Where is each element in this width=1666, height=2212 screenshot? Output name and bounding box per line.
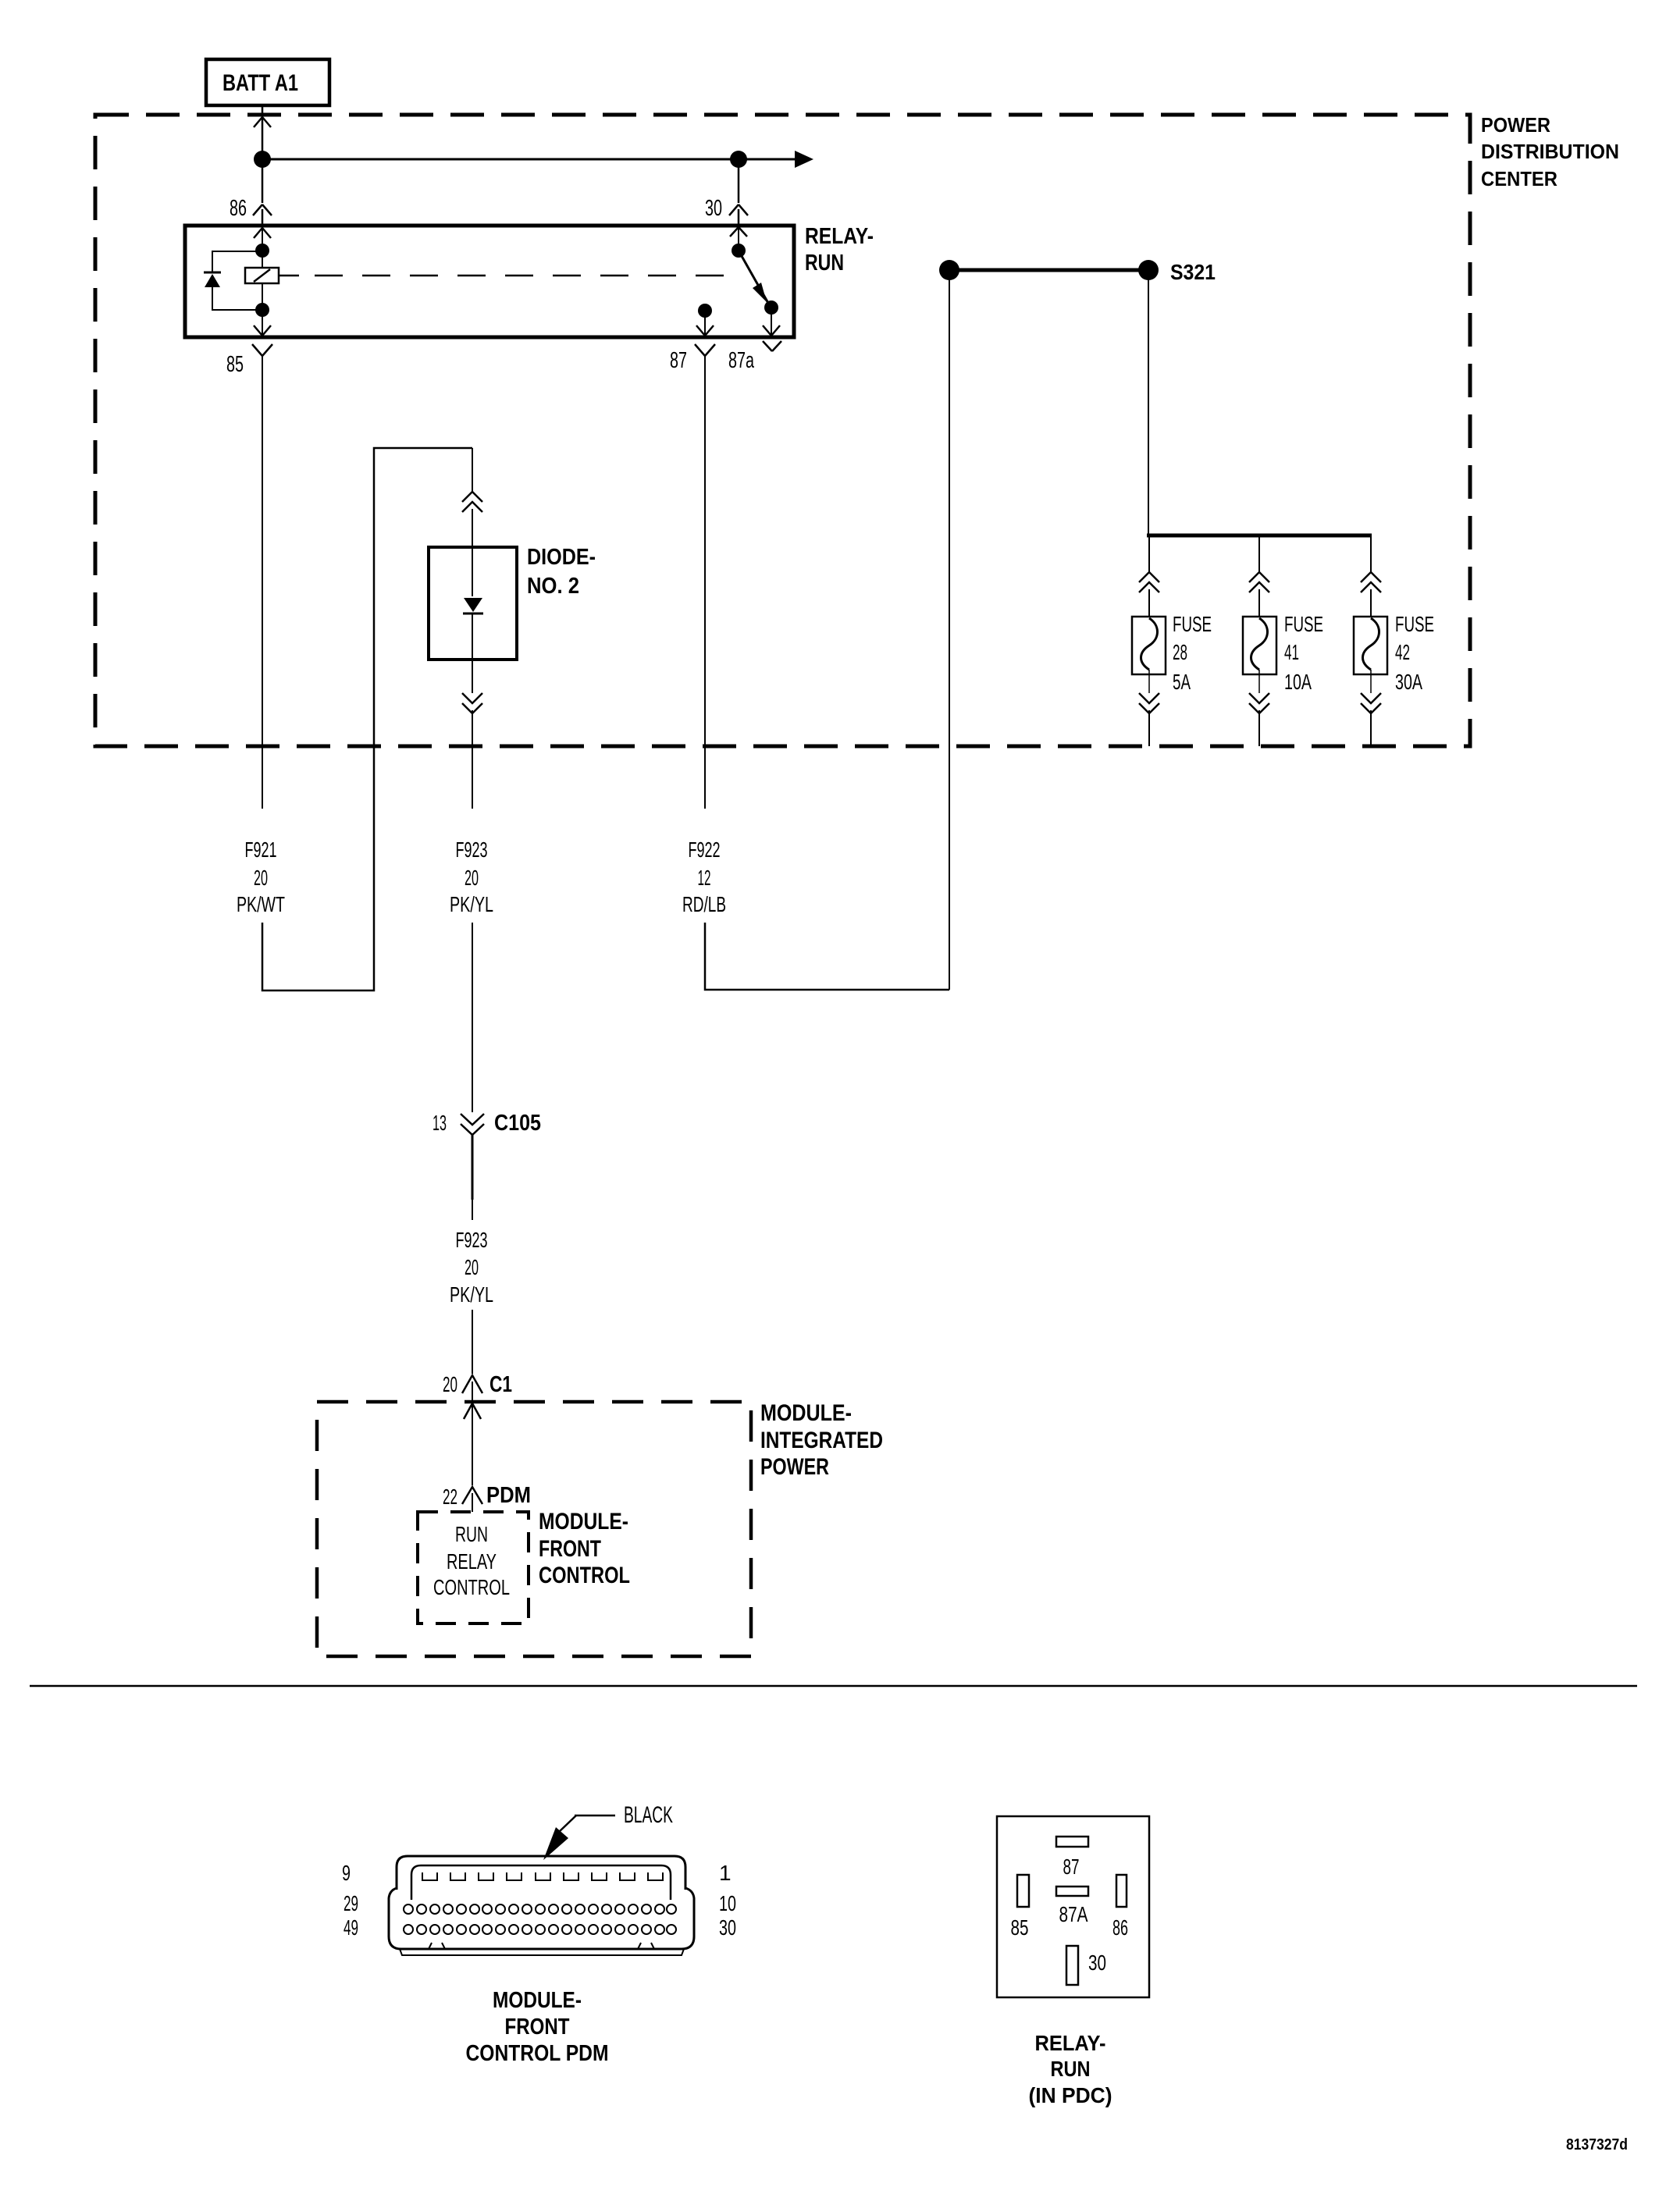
svg-text:DIODE-: DIODE- (527, 545, 596, 570)
svg-text:NO. 2: NO. 2 (527, 574, 579, 599)
svg-text:10: 10 (719, 1891, 736, 1915)
svg-text:12: 12 (698, 866, 711, 890)
svg-text:INTEGRATED: INTEGRATED (760, 1428, 883, 1453)
svg-text:S321: S321 (1170, 260, 1216, 284)
svg-text:RELAY: RELAY (447, 1549, 497, 1574)
svg-text:PK/YL: PK/YL (450, 892, 493, 916)
svg-text:30: 30 (719, 1915, 736, 1940)
svg-text:FRONT: FRONT (505, 2015, 570, 2040)
svg-text:20: 20 (465, 1255, 479, 1279)
svg-text:MODULE-: MODULE- (760, 1400, 852, 1426)
svg-text:CONTROL: CONTROL (433, 1575, 510, 1599)
svg-text:85: 85 (1011, 1915, 1029, 1940)
svg-text:13: 13 (433, 1111, 447, 1135)
svg-text:F922: F922 (689, 838, 721, 862)
svg-text:CONTROL: CONTROL (539, 1563, 630, 1588)
svg-text:PK/WT: PK/WT (237, 892, 285, 916)
svg-text:8137327d: 8137327d (1566, 2136, 1628, 2153)
svg-text:CONTROL PDM: CONTROL PDM (466, 2041, 609, 2066)
svg-text:5A: 5A (1173, 670, 1191, 694)
svg-text:POWER: POWER (760, 1454, 829, 1480)
svg-text:30A: 30A (1395, 670, 1422, 694)
svg-text:MODULE-: MODULE- (539, 1509, 628, 1535)
svg-text:(IN PDC): (IN PDC) (1029, 2083, 1112, 2107)
svg-text:29: 29 (344, 1891, 358, 1915)
svg-text:POWER: POWER (1481, 113, 1550, 137)
svg-text:42: 42 (1395, 640, 1410, 664)
svg-text:10A: 10A (1284, 670, 1312, 694)
svg-text:F923: F923 (456, 1228, 488, 1252)
svg-text:30: 30 (1088, 1951, 1106, 1975)
svg-text:RUN: RUN (455, 1522, 488, 1546)
svg-text:20: 20 (465, 866, 479, 890)
svg-text:FUSE: FUSE (1395, 612, 1434, 636)
svg-text:87: 87 (670, 348, 687, 373)
svg-text:20: 20 (443, 1372, 457, 1396)
svg-text:MODULE-: MODULE- (493, 1988, 582, 2013)
svg-text:FRONT: FRONT (539, 1536, 601, 1562)
svg-text:41: 41 (1284, 640, 1299, 664)
svg-text:PK/YL: PK/YL (450, 1282, 493, 1307)
svg-text:RUN: RUN (1051, 2057, 1091, 2081)
svg-text:F921: F921 (245, 838, 277, 862)
svg-text:RELAY-: RELAY- (1035, 2031, 1106, 2055)
svg-text:20: 20 (254, 866, 268, 890)
svg-text:CENTER: CENTER (1481, 167, 1557, 190)
svg-text:9: 9 (342, 1861, 351, 1885)
svg-text:87A: 87A (1059, 1902, 1088, 1926)
svg-text:FUSE: FUSE (1284, 612, 1323, 636)
svg-text:F923: F923 (456, 838, 488, 862)
svg-text:BATT A1: BATT A1 (222, 70, 298, 96)
svg-text:BLACK: BLACK (624, 1802, 673, 1828)
svg-text:1: 1 (719, 1861, 732, 1885)
svg-text:86: 86 (1112, 1915, 1128, 1940)
svg-text:RELAY-: RELAY- (805, 224, 874, 249)
svg-text:RD/LB: RD/LB (682, 892, 726, 916)
svg-text:C105: C105 (494, 1111, 541, 1136)
svg-text:22: 22 (443, 1485, 457, 1509)
svg-text:DISTRIBUTION: DISTRIBUTION (1481, 140, 1619, 163)
svg-text:28: 28 (1173, 640, 1187, 664)
svg-text:86: 86 (230, 196, 247, 221)
svg-text:30: 30 (705, 196, 722, 221)
svg-text:PDM: PDM (486, 1483, 531, 1508)
svg-text:87a: 87a (728, 348, 755, 373)
svg-text:87: 87 (1063, 1855, 1080, 1879)
svg-text:C1: C1 (489, 1372, 512, 1397)
svg-text:85: 85 (226, 352, 244, 377)
svg-text:FUSE: FUSE (1173, 612, 1212, 636)
svg-text:RUN: RUN (805, 251, 844, 276)
svg-text:49: 49 (344, 1915, 358, 1940)
